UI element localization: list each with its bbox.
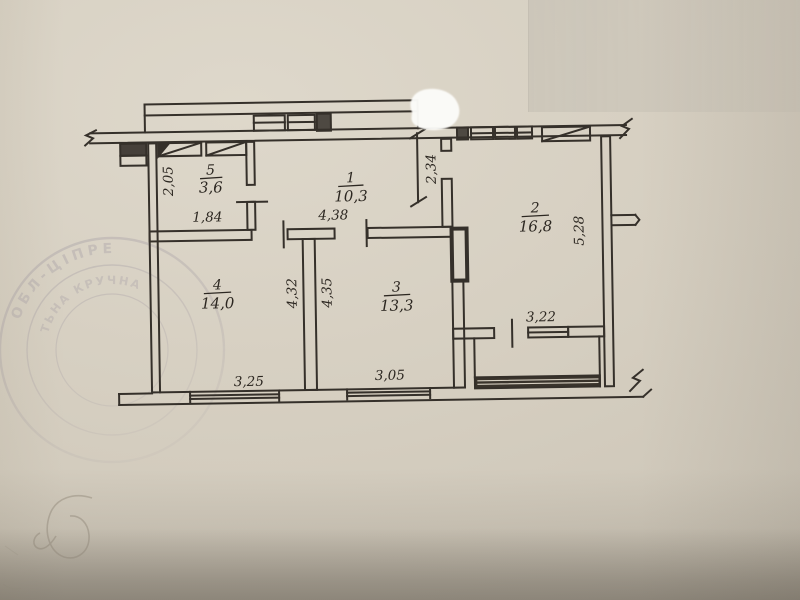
balcony-railing <box>475 375 600 388</box>
room-label-2: 2 16,8 <box>518 200 552 236</box>
svg-text:2: 2 <box>530 200 540 216</box>
dim-room5-width: 1,84 <box>192 209 222 225</box>
whiteout-blob <box>411 89 460 130</box>
left-outer-stub <box>120 144 146 166</box>
wall-right <box>601 136 642 387</box>
svg-text:13,3: 13,3 <box>380 296 414 315</box>
balcony-window-post <box>317 114 331 131</box>
svg-text:1: 1 <box>346 170 355 186</box>
dim-room3-width: 3,05 <box>375 367 405 383</box>
dim-room4-depth: 4,32 <box>284 278 300 309</box>
photographed-paper-sheet: ОБЛ-ЦІПРЕ ТЬНА КРУЧНА <box>0 0 800 600</box>
faint-corner-marks <box>3 546 21 589</box>
wall-room1-room2 <box>441 139 452 227</box>
dim-room5-depth: 2,05 <box>161 166 177 197</box>
svg-text:3: 3 <box>392 280 401 296</box>
room5-closet-symbols <box>158 142 246 156</box>
dim-room2-depth: 5,28 <box>571 215 587 246</box>
room-label-3: 3 13,3 <box>380 279 414 315</box>
dim-room4-width: 3,25 <box>234 374 264 390</box>
stamp-arc-text-lower: ТЬНА КРУЧНА <box>37 273 143 335</box>
svg-text:3,6: 3,6 <box>199 178 224 196</box>
signature-scribble <box>34 496 92 558</box>
svg-text:10,3: 10,3 <box>334 187 368 206</box>
room-label-4: 4 14,0 <box>201 277 235 313</box>
lower-balcony <box>474 336 600 388</box>
svg-text:5: 5 <box>206 162 215 178</box>
wall-break-bottom-right <box>630 370 643 391</box>
plan-linework: 5 3,6 1 10,3 2 16,8 4 <box>85 97 652 406</box>
room2-top-windows <box>457 126 590 143</box>
dim-hall-right-depth: 2,34 <box>423 154 439 185</box>
svg-text:16,8: 16,8 <box>519 217 553 236</box>
room-label-5: 5 3,6 <box>199 162 224 196</box>
room-label-1: 1 10,3 <box>334 170 368 206</box>
floor-plan-drawing: ОБЛ-ЦІПРЕ ТЬНА КРУЧНА <box>0 0 800 600</box>
wall-room4-room3 <box>303 239 317 390</box>
svg-text:14,0: 14,0 <box>201 294 235 313</box>
dim-room3-depth: 4,35 <box>319 278 335 309</box>
ventilation-duct <box>452 228 468 280</box>
svg-text:4: 4 <box>212 277 222 293</box>
wall-left <box>148 143 160 392</box>
wall-room3-room2 <box>452 281 465 388</box>
dim-balcony-opening: 3,22 <box>526 309 556 325</box>
dim-hall-length: 4,38 <box>317 207 349 223</box>
faded-round-stamp: ОБЛ-ЦІПРЕ ТЬНА КРУЧНА <box>0 238 224 462</box>
